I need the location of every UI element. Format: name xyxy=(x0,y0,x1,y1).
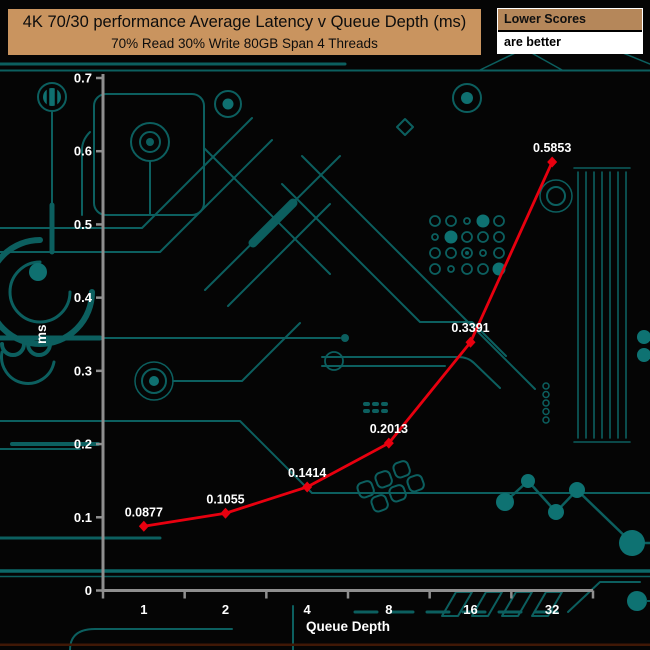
y-axis-title: ms xyxy=(34,324,49,344)
series-line xyxy=(144,162,552,526)
y-tick-label: 0.5 xyxy=(74,217,92,232)
chart-canvas: 00.10.20.30.40.50.60.7124816320.08770.10… xyxy=(0,0,650,650)
x-tick-label: 32 xyxy=(545,602,559,617)
y-tick-label: 0.4 xyxy=(74,290,93,305)
data-point xyxy=(221,508,231,519)
x-tick-label: 16 xyxy=(463,602,477,617)
data-point-label: 0.3391 xyxy=(451,321,489,335)
data-point-label: 0.5853 xyxy=(533,141,571,155)
latency-line-chart: 00.10.20.30.40.50.60.7124816320.08770.10… xyxy=(0,0,650,650)
legend-note-box: Lower Scores are better xyxy=(497,8,643,54)
chart-subtitle: 70% Read 30% Write 80GB Span 4 Threads xyxy=(8,36,481,51)
data-point xyxy=(139,521,149,532)
chart-title-box: 4K 70/30 performance Average Latency v Q… xyxy=(8,9,481,55)
x-tick-label: 1 xyxy=(140,602,147,617)
y-tick-label: 0.2 xyxy=(74,437,92,452)
chart-title: 4K 70/30 performance Average Latency v Q… xyxy=(8,9,481,36)
data-point-label: 0.0877 xyxy=(125,505,163,519)
legend-note-line2: are better xyxy=(498,30,642,53)
data-point xyxy=(547,156,557,167)
legend-note-line1: Lower Scores xyxy=(498,9,642,30)
y-tick-label: 0.6 xyxy=(74,144,92,159)
data-point-label: 0.1414 xyxy=(288,466,326,480)
data-point xyxy=(302,481,312,492)
y-tick-label: 0.3 xyxy=(74,363,92,378)
x-axis-title: Queue Depth xyxy=(306,619,390,634)
y-tick-label: 0.1 xyxy=(74,510,92,525)
data-point-label: 0.1055 xyxy=(206,492,244,506)
y-tick-label: 0 xyxy=(85,583,92,598)
y-tick-label: 0.7 xyxy=(74,71,92,86)
x-tick-label: 2 xyxy=(222,602,229,617)
x-tick-label: 8 xyxy=(385,602,392,617)
data-point-label: 0.2013 xyxy=(370,422,408,436)
x-tick-label: 4 xyxy=(304,602,312,617)
